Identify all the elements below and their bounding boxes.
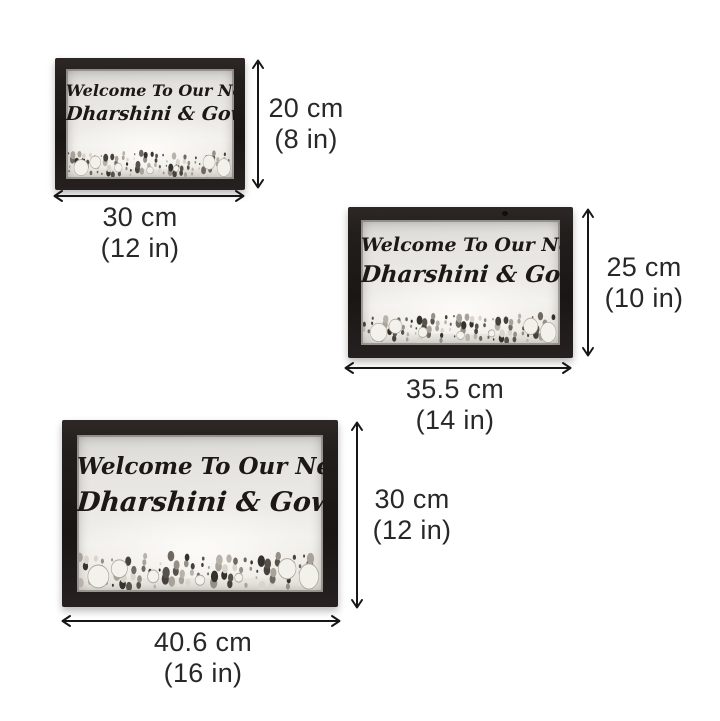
dimension-alt: (12 in) (360, 515, 464, 546)
sign-title: Welcome To Our Nest (66, 81, 234, 100)
width-label-small: 30 cm (12 in) (75, 202, 205, 264)
dimension-value: 40.6 cm (128, 627, 278, 658)
dimension-alt: (8 in) (260, 124, 352, 155)
width-label-large: 40.6 cm (16 in) (128, 627, 278, 689)
sign-title: Welcome To Our Nest (361, 234, 560, 256)
sign-names: Dharshini & Gowtham (66, 103, 234, 125)
height-label-medium: 25 cm (10 in) (592, 252, 696, 314)
hanging-hook-dot (502, 211, 508, 216)
product-frame-large: Welcome To Our Nest Dharshini & Gowtham (62, 420, 338, 607)
product-frame-medium: Welcome To Our Nest Dharshini & Gowtham (348, 207, 573, 358)
dimension-value: 30 cm (360, 484, 464, 515)
frame-interior: Welcome To Our Nest Dharshini & Gowtham (77, 435, 323, 592)
dimension-alt: (10 in) (592, 283, 696, 314)
pebbles-shells-band (68, 140, 232, 177)
sign-title: Welcome To Our Nest (77, 453, 323, 480)
frame-interior: Welcome To Our Nest Dharshini & Gowtham (361, 220, 560, 345)
height-label-small: 20 cm (8 in) (260, 93, 352, 155)
dimension-alt: (14 in) (385, 405, 525, 436)
dimension-value: 25 cm (592, 252, 696, 283)
sign-names: Dharshini & Gowtham (77, 487, 323, 518)
height-label-large: 30 cm (12 in) (360, 484, 464, 546)
width-label-medium: 35.5 cm (14 in) (385, 374, 525, 436)
product-frame-small: Welcome To Our Nest Dharshini & Gowtham (55, 58, 245, 190)
pebbles-shells-band (79, 537, 321, 590)
frame-interior: Welcome To Our Nest Dharshini & Gowtham (66, 69, 234, 179)
dimension-alt: (12 in) (75, 233, 205, 264)
dimension-value: 35.5 cm (385, 374, 525, 405)
dimension-alt: (16 in) (128, 658, 278, 689)
pebbles-shells-band (363, 301, 558, 344)
sign-names: Dharshini & Gowtham (361, 261, 560, 288)
dimension-value: 30 cm (75, 202, 205, 233)
dimension-value: 20 cm (260, 93, 352, 124)
